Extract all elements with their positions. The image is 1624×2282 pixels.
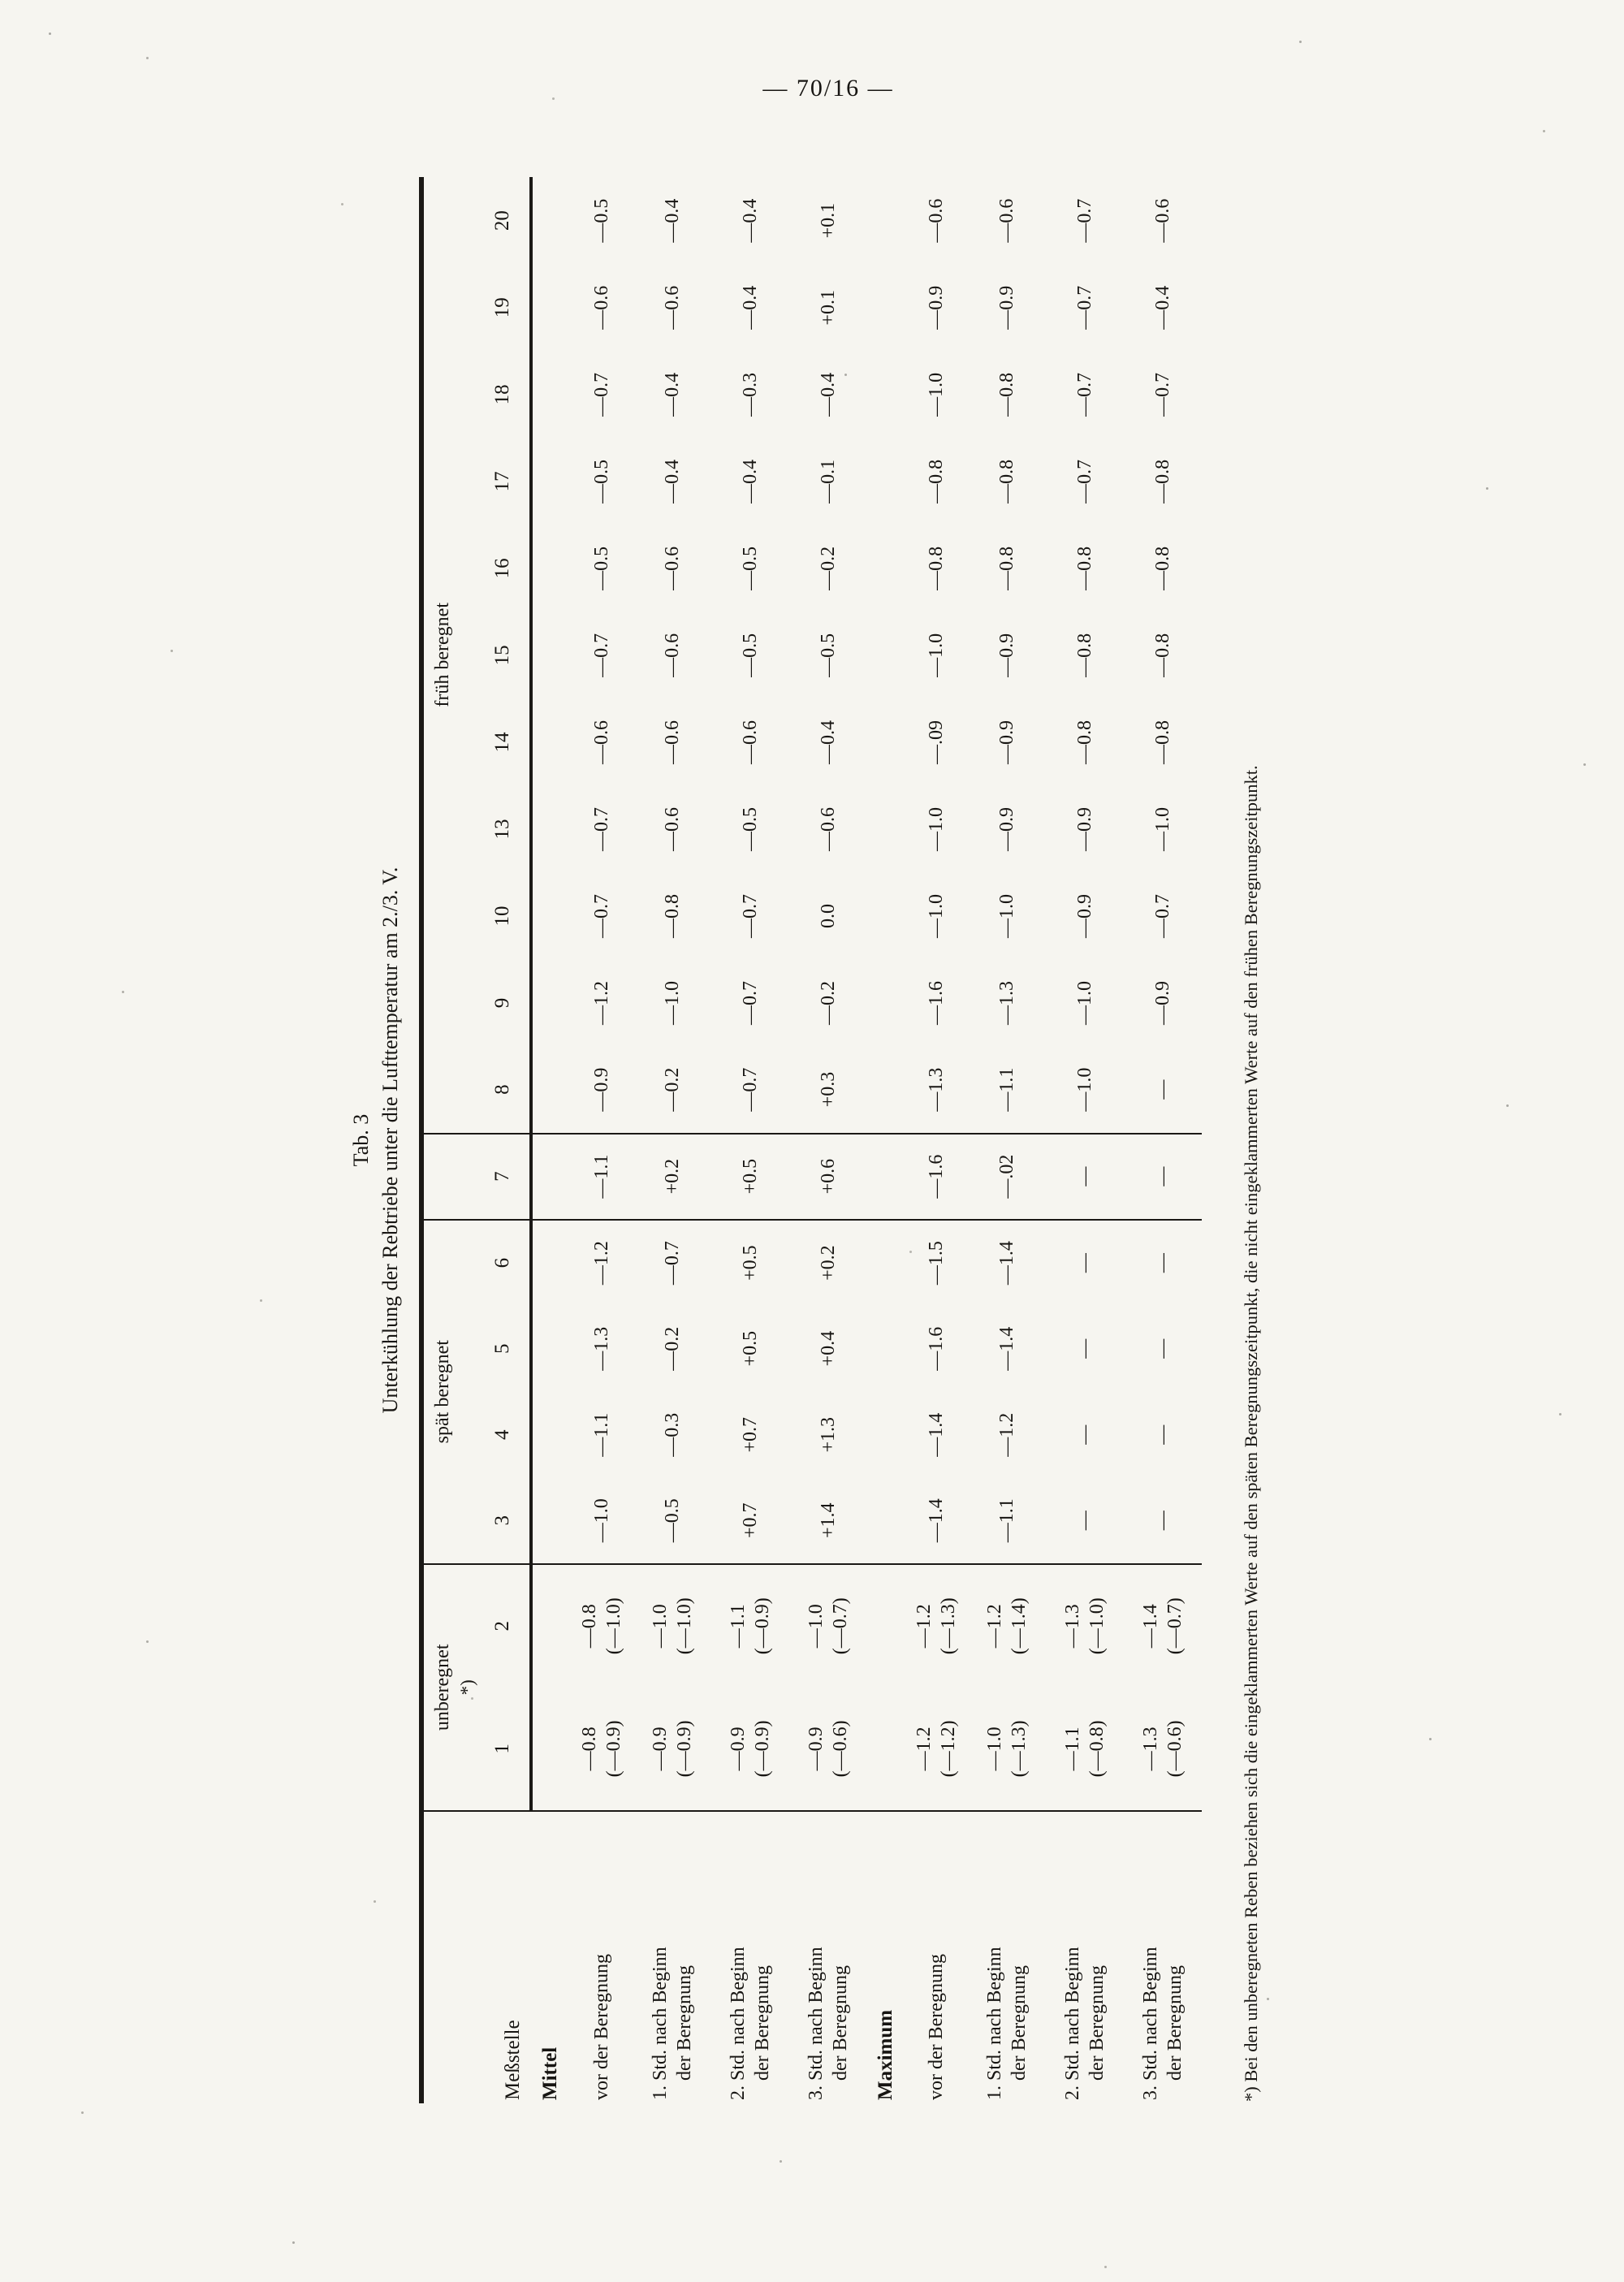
data-cell: —1.1 <box>968 1478 1046 1564</box>
data-cell: —0.6 <box>968 177 1046 264</box>
data-cell: +0.2 <box>633 1134 711 1220</box>
empty-cell <box>867 1134 905 1220</box>
empty-cell <box>867 1220 905 1306</box>
rotated-table-container: Tab. 3 Unterkühlung der Rebtriebe unter … <box>349 154 1250 2103</box>
col-header: 13 <box>482 785 531 872</box>
data-cell: —0.9 <box>968 785 1046 872</box>
data-cell: —0.5 <box>570 177 633 264</box>
data-cell: —1.0 <box>1124 785 1202 872</box>
empty-cell <box>867 1392 905 1478</box>
table-title-block: Tab. 3 Unterkühlung der Rebtriebe unter … <box>349 177 403 2103</box>
col-header: 8 <box>482 1047 531 1134</box>
data-cell: —1.6 <box>905 1134 968 1220</box>
data-cell: —1.4 <box>968 1220 1046 1306</box>
data-cell: +0.7 <box>711 1392 789 1478</box>
col-header: 2 <box>482 1564 531 1688</box>
data-cell: —1.2(—1.3) <box>905 1564 968 1688</box>
row-label: 1. Std. nach Beginnder Beregnung <box>633 1811 711 2103</box>
data-cell: +0.2 <box>789 1220 867 1306</box>
row-label: 1. Std. nach Beginnder Beregnung <box>968 1811 1046 2103</box>
row-label: 3. Std. nach Beginnder Beregnung <box>1124 1811 1202 2103</box>
data-cell: —0.7 <box>570 351 633 438</box>
empty-cell <box>867 351 905 438</box>
data-cell: —0.6 <box>789 785 867 872</box>
data-cell: —1.0 <box>968 872 1046 959</box>
data-cell: — <box>1124 1392 1202 1478</box>
group-header <box>421 1134 482 1220</box>
data-cell: —0.7 <box>570 785 633 872</box>
data-cell: —0.9(—0.9) <box>711 1688 789 1811</box>
data-cell: —0.8 <box>1046 612 1124 698</box>
empty-cell <box>531 1564 570 1688</box>
data-cell: —1.2(—1.4) <box>968 1564 1046 1688</box>
data-cell: —0.9 <box>968 698 1046 785</box>
data-cell: +0.1 <box>789 264 867 351</box>
empty-cell <box>531 872 570 959</box>
data-cell: —.02 <box>968 1134 1046 1220</box>
empty-cell <box>867 438 905 525</box>
data-cell: —0.4 <box>633 351 711 438</box>
data-cell: —0.6 <box>570 264 633 351</box>
data-cell: —0.6 <box>633 525 711 612</box>
data-cell: —1.0 <box>905 612 968 698</box>
empty-cell <box>867 1688 905 1811</box>
data-cell: —0.5 <box>570 525 633 612</box>
data-cell: —0.8 <box>968 351 1046 438</box>
col-header: 15 <box>482 612 531 698</box>
data-cell: —1.2 <box>968 1392 1046 1478</box>
data-cell: —1.2 <box>570 960 633 1047</box>
data-cell: —1.0 <box>1046 960 1124 1047</box>
table-footnote: *) Bei den unberegneten Reben beziehen s… <box>1241 153 1262 2103</box>
empty-cell <box>531 1392 570 1478</box>
empty-cell <box>867 872 905 959</box>
empty-cell <box>531 785 570 872</box>
data-cell: —1.0 <box>905 351 968 438</box>
empty-cell <box>867 698 905 785</box>
data-cell: —0.8 <box>905 438 968 525</box>
data-cell: —0.6 <box>633 612 711 698</box>
empty-cell <box>531 351 570 438</box>
data-cell: —0.8 <box>905 525 968 612</box>
data-cell: —0.5 <box>711 785 789 872</box>
scan-noise <box>49 32 51 35</box>
col-header: 17 <box>482 438 531 525</box>
data-cell: —0.2 <box>789 960 867 1047</box>
empty-cell <box>867 1564 905 1688</box>
data-cell: —0.7 <box>1046 177 1124 264</box>
empty-cell <box>531 612 570 698</box>
data-cell: —0.9(—0.6) <box>789 1688 867 1811</box>
data-cell: —1.2 <box>570 1220 633 1306</box>
data-cell: —0.2 <box>633 1047 711 1134</box>
data-cell: —0.8 <box>1124 525 1202 612</box>
data-cell: —0.9 <box>570 1047 633 1134</box>
col-header: 20 <box>482 177 531 264</box>
data-cell: —1.5 <box>905 1220 968 1306</box>
data-cell: —0.8 <box>1124 438 1202 525</box>
empty-cell <box>531 264 570 351</box>
row-label: 2. Std. nach Beginnder Beregnung <box>1046 1811 1124 2103</box>
data-cell: —1.6 <box>905 960 968 1047</box>
data-cell: —0.7 <box>633 1220 711 1306</box>
data-cell: —1.4 <box>905 1478 968 1564</box>
data-cell: — <box>1046 1478 1124 1564</box>
data-cell: +0.7 <box>711 1478 789 1564</box>
data-cell: —0.8(—0.9) <box>570 1688 633 1811</box>
data-cell: —1.0 <box>633 960 711 1047</box>
data-cell: —0.5 <box>789 612 867 698</box>
data-cell: — <box>1046 1220 1124 1306</box>
data-cell: —1.0 <box>1046 1047 1124 1134</box>
data-table: Meßstelleunberegnet*)spät beregnetfrüh b… <box>419 177 1202 2103</box>
data-cell: —0.7 <box>1124 872 1202 959</box>
data-cell: —1.3 <box>968 960 1046 1047</box>
data-cell: +0.5 <box>711 1306 789 1392</box>
row-label: 2. Std. nach Beginnder Beregnung <box>711 1811 789 2103</box>
data-cell: —1.4(—0.7) <box>1124 1564 1202 1688</box>
data-cell: — <box>1124 1220 1202 1306</box>
data-cell: — <box>1124 1047 1202 1134</box>
data-cell: —0.5 <box>633 1478 711 1564</box>
data-cell: —0.4 <box>711 438 789 525</box>
data-cell: +1.4 <box>789 1478 867 1564</box>
empty-cell <box>867 960 905 1047</box>
data-cell: —1.0(—0.7) <box>789 1564 867 1688</box>
empty-cell <box>531 1688 570 1811</box>
col-header: 3 <box>482 1478 531 1564</box>
empty-cell <box>531 438 570 525</box>
data-cell: —0.6 <box>633 785 711 872</box>
empty-cell <box>531 1134 570 1220</box>
row-label: 3. Std. nach Beginnder Beregnung <box>789 1811 867 2103</box>
data-cell: —0.6 <box>711 698 789 785</box>
data-cell: —1.4 <box>968 1306 1046 1392</box>
col-header: 10 <box>482 872 531 959</box>
data-cell: —0.8 <box>633 872 711 959</box>
data-cell: —0.4 <box>711 264 789 351</box>
data-cell: —0.7 <box>1124 351 1202 438</box>
data-cell: —0.8 <box>1124 612 1202 698</box>
empty-cell <box>867 785 905 872</box>
col-header: 19 <box>482 264 531 351</box>
data-cell: —1.0 <box>570 1478 633 1564</box>
data-cell: —1.3 <box>905 1047 968 1134</box>
data-cell: +0.3 <box>789 1047 867 1134</box>
data-cell: — <box>1124 1134 1202 1220</box>
col-header: 6 <box>482 1220 531 1306</box>
data-cell: —1.0(—1.0) <box>633 1564 711 1688</box>
scanned-page: — 70/16 — Tab. 3 Unterkühlung der Rebtri… <box>0 0 1624 2282</box>
empty-cell <box>531 1306 570 1392</box>
data-cell: —0.9(—0.9) <box>633 1688 711 1811</box>
data-cell: —0.4 <box>789 351 867 438</box>
data-cell: —0.8 <box>968 438 1046 525</box>
data-cell: —0.3 <box>711 351 789 438</box>
data-cell: —0.7 <box>1046 264 1124 351</box>
empty-cell <box>531 525 570 612</box>
data-cell: +0.1 <box>789 177 867 264</box>
data-cell: —0.1 <box>789 438 867 525</box>
col-header: 1 <box>482 1688 531 1811</box>
data-cell: —1.1 <box>968 1047 1046 1134</box>
data-cell: —0.9 <box>968 612 1046 698</box>
page-number: — 70/16 — <box>715 75 942 102</box>
data-cell: —0.8(—1.0) <box>570 1564 633 1688</box>
col-header: 14 <box>482 698 531 785</box>
col-header: 5 <box>482 1306 531 1392</box>
data-cell: —0.7 <box>1046 351 1124 438</box>
data-cell: —0.7 <box>711 872 789 959</box>
data-cell: —0.8 <box>1046 525 1124 612</box>
data-cell: —0.6 <box>633 264 711 351</box>
group-header: spät beregnet <box>421 1220 482 1564</box>
data-cell: —0.5 <box>711 612 789 698</box>
data-cell: —0.9 <box>905 264 968 351</box>
data-cell: +1.3 <box>789 1392 867 1478</box>
data-cell: — <box>1046 1134 1124 1220</box>
data-cell: —0.9 <box>1124 960 1202 1047</box>
data-cell: —0.2 <box>633 1306 711 1392</box>
row-label: vor der Beregnung <box>570 1811 633 2103</box>
data-cell: —1.4 <box>905 1392 968 1478</box>
data-cell: —0.4 <box>633 177 711 264</box>
data-cell: +0.5 <box>711 1220 789 1306</box>
data-cell: —0.6 <box>570 698 633 785</box>
data-cell: —1.3 <box>570 1306 633 1392</box>
data-cell: —1.6 <box>905 1306 968 1392</box>
data-cell: —1.1(—0.8) <box>1046 1688 1124 1811</box>
data-cell: —0.9 <box>1046 872 1124 959</box>
empty-cell <box>867 1047 905 1134</box>
data-cell: —0.7 <box>711 1047 789 1134</box>
data-cell: 0.0 <box>789 872 867 959</box>
col-header: 18 <box>482 351 531 438</box>
empty-cell <box>867 1478 905 1564</box>
table-title: Unterkühlung der Rebtriebe unter die Luf… <box>378 177 403 2103</box>
data-cell: —0.4 <box>789 698 867 785</box>
empty-cell <box>531 960 570 1047</box>
data-cell: —0.7 <box>570 612 633 698</box>
data-cell: +0.4 <box>789 1306 867 1392</box>
corner-header: Meßstelle <box>421 1811 531 2103</box>
data-cell: —0.9 <box>968 264 1046 351</box>
data-cell: —0.9 <box>1046 785 1124 872</box>
empty-cell <box>867 612 905 698</box>
data-cell: —1.1 <box>570 1392 633 1478</box>
data-cell: —0.4 <box>711 177 789 264</box>
data-cell: — <box>1124 1306 1202 1392</box>
data-cell: +0.5 <box>711 1134 789 1220</box>
empty-cell <box>531 1478 570 1564</box>
data-cell: —0.2 <box>789 525 867 612</box>
col-header: 9 <box>482 960 531 1047</box>
col-header: 7 <box>482 1134 531 1220</box>
data-cell: —0.7 <box>570 872 633 959</box>
empty-cell <box>867 264 905 351</box>
data-cell: —1.0 <box>905 785 968 872</box>
data-cell: —1.3(—0.6) <box>1124 1688 1202 1811</box>
data-cell: —.09 <box>905 698 968 785</box>
data-cell: — <box>1046 1392 1124 1478</box>
data-cell: —1.0 <box>905 872 968 959</box>
data-cell: —1.0(—1.3) <box>968 1688 1046 1811</box>
row-label: vor der Beregnung <box>905 1811 968 2103</box>
group-header: früh beregnet <box>421 177 482 1134</box>
empty-cell <box>867 525 905 612</box>
section-heading: Maximum <box>867 1811 905 2103</box>
data-cell: —1.1 <box>570 1134 633 1220</box>
data-cell: —0.6 <box>1124 177 1202 264</box>
data-cell: —0.8 <box>1124 698 1202 785</box>
data-cell: —0.8 <box>968 525 1046 612</box>
data-cell: —0.6 <box>633 698 711 785</box>
empty-cell <box>531 177 570 264</box>
col-header: 16 <box>482 525 531 612</box>
data-cell: —1.2(—1.2) <box>905 1688 968 1811</box>
group-header: unberegnet*) <box>421 1564 482 1811</box>
data-cell: —0.5 <box>711 525 789 612</box>
data-cell: +0.6 <box>789 1134 867 1220</box>
data-cell: —0.7 <box>1046 438 1124 525</box>
data-cell: — <box>1046 1306 1124 1392</box>
empty-cell <box>867 1306 905 1392</box>
data-cell: —0.4 <box>1124 264 1202 351</box>
data-cell: —0.8 <box>1046 698 1124 785</box>
data-cell: —0.7 <box>711 960 789 1047</box>
table-label: Tab. 3 <box>349 177 374 2103</box>
empty-cell <box>531 1220 570 1306</box>
col-header: 4 <box>482 1392 531 1478</box>
data-cell: — <box>1124 1478 1202 1564</box>
data-cell: —1.3(—1.0) <box>1046 1564 1124 1688</box>
data-cell: —0.4 <box>633 438 711 525</box>
empty-cell <box>867 177 905 264</box>
data-cell: —0.6 <box>905 177 968 264</box>
data-cell: —0.3 <box>633 1392 711 1478</box>
empty-cell <box>531 1047 570 1134</box>
section-heading: Mittel <box>531 1811 570 2103</box>
data-cell: —1.1(—0.9) <box>711 1564 789 1688</box>
empty-cell <box>531 698 570 785</box>
data-cell: —0.5 <box>570 438 633 525</box>
